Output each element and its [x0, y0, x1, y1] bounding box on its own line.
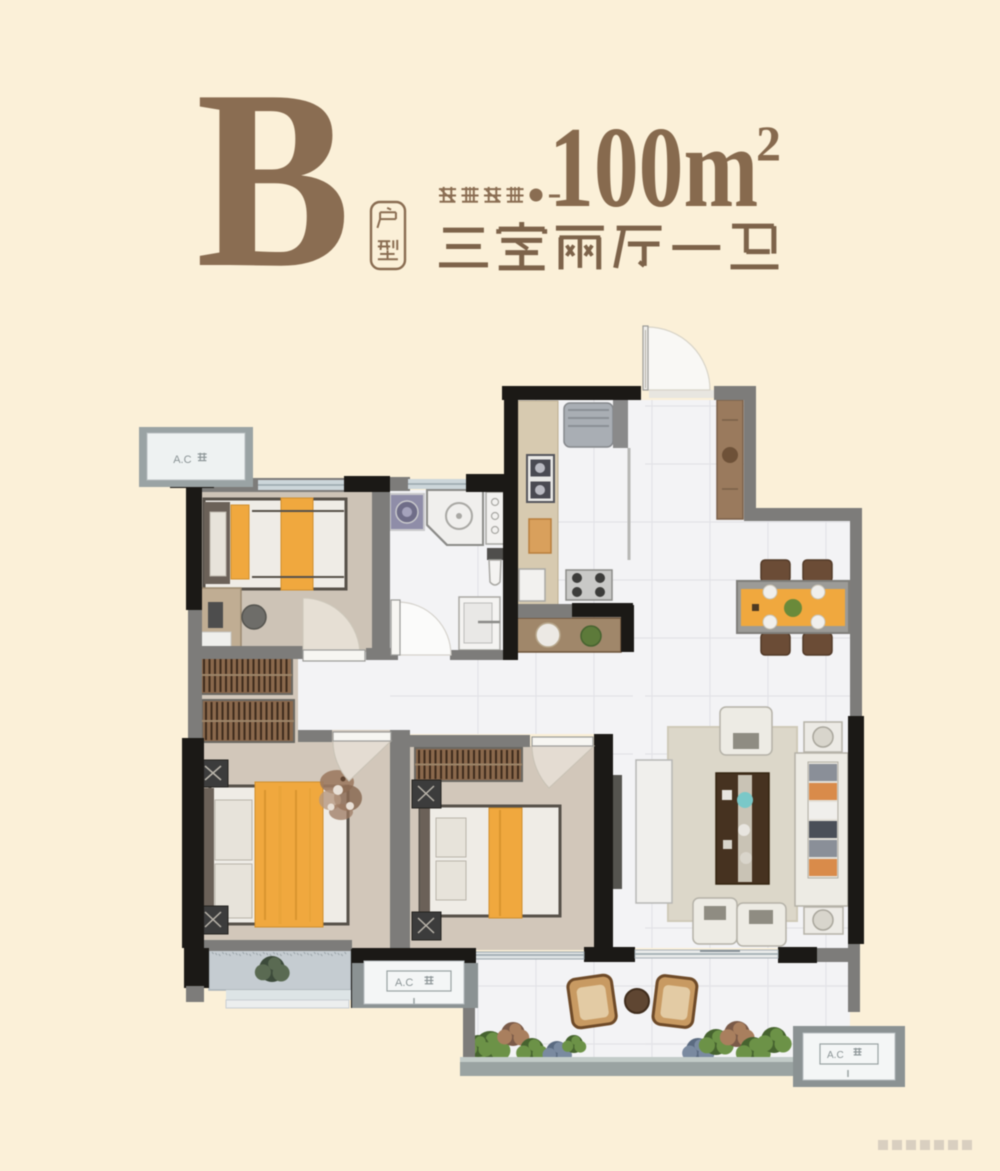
svg-text:B: B	[196, 36, 351, 320]
svg-text:A.C: A.C	[395, 977, 413, 989]
svg-text:100m: 100m	[549, 105, 758, 232]
svg-text:A.C: A.C	[173, 454, 191, 466]
svg-text:2: 2	[756, 115, 781, 171]
svg-text:A.C: A.C	[827, 1050, 844, 1061]
